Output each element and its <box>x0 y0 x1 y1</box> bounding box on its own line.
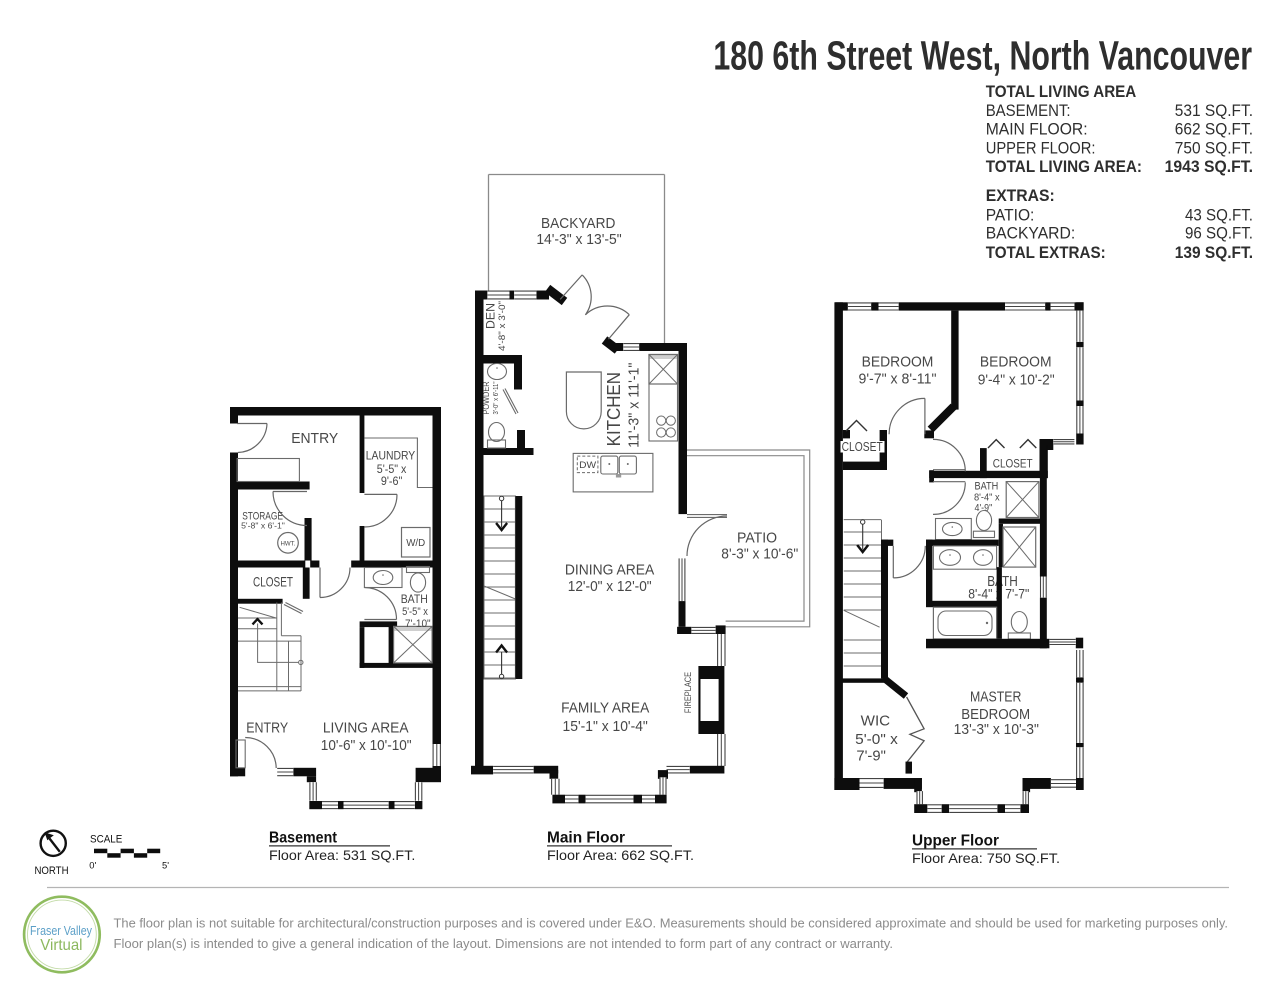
svg-text:ENTRY: ENTRY <box>246 720 288 737</box>
svg-text:TOTAL LIVING AREA:: TOTAL LIVING AREA: <box>986 157 1142 176</box>
svg-text:Upper Floor: Upper Floor <box>912 832 999 849</box>
svg-text:MAIN FLOOR:: MAIN FLOOR: <box>986 119 1088 138</box>
svg-text:CLOSET: CLOSET <box>993 457 1033 471</box>
svg-text:DEN: DEN <box>486 303 498 329</box>
svg-text:15'-1" x 10'-4": 15'-1" x 10'-4" <box>563 718 648 735</box>
svg-text:The floor plan is not suitable: The floor plan is not suitable for archi… <box>114 916 1229 931</box>
svg-text:9'-6": 9'-6" <box>381 474 402 488</box>
svg-text:180 6th Street West, North Van: 180 6th Street West, North Vancouver <box>713 33 1252 79</box>
svg-text:DW: DW <box>579 460 597 470</box>
svg-text:ENTRY: ENTRY <box>291 430 338 447</box>
svg-text:BACKYARD:: BACKYARD: <box>986 224 1075 243</box>
svg-text:5': 5' <box>162 861 169 871</box>
svg-text:BATH: BATH <box>401 592 428 606</box>
svg-text:LAUNDRY: LAUNDRY <box>366 448 416 462</box>
svg-text:MASTER: MASTER <box>970 688 1022 705</box>
svg-text:10'-6" x 10'-10": 10'-6" x 10'-10" <box>321 737 412 754</box>
svg-text:BEDROOM: BEDROOM <box>862 354 934 371</box>
svg-text:BACKYARD: BACKYARD <box>541 215 615 232</box>
svg-text:7'-9": 7'-9" <box>856 748 886 765</box>
svg-text:8'-3" x 10'-6": 8'-3" x 10'-6" <box>721 545 798 562</box>
svg-text:Floor Area: 531 SQ.FT.: Floor Area: 531 SQ.FT. <box>269 847 415 863</box>
svg-text:FIREPLACE: FIREPLACE <box>683 672 693 713</box>
svg-text:HWT.: HWT. <box>281 541 296 548</box>
svg-text:531 SQ.FT.: 531 SQ.FT. <box>1175 101 1253 120</box>
svg-text:SCALE: SCALE <box>90 833 122 845</box>
svg-text:KITCHEN: KITCHEN <box>604 372 624 446</box>
svg-text:139 SQ.FT.: 139 SQ.FT. <box>1175 243 1253 262</box>
svg-text:LIVING AREA: LIVING AREA <box>323 720 409 737</box>
svg-text:750 SQ.FT.: 750 SQ.FT. <box>1175 139 1253 158</box>
svg-text:13'-3" x 10'-3": 13'-3" x 10'-3" <box>954 721 1039 738</box>
svg-text:FAMILY AREA: FAMILY AREA <box>561 699 649 716</box>
svg-text:7'-10": 7'-10" <box>405 618 431 630</box>
svg-text:PATIO:: PATIO: <box>986 206 1035 225</box>
svg-text:W/D: W/D <box>406 538 425 549</box>
svg-text:9'-7" x 8'-11": 9'-7" x 8'-11" <box>859 371 937 388</box>
svg-text:WIC: WIC <box>861 713 891 730</box>
svg-text:662 SQ.FT.: 662 SQ.FT. <box>1175 119 1253 138</box>
svg-text:4'-9": 4'-9" <box>975 502 993 514</box>
svg-text:Main Floor: Main Floor <box>547 829 625 846</box>
svg-text:14'-3" x 13'-5": 14'-3" x 13'-5" <box>536 231 621 248</box>
svg-text:9'-4" x 10'-2": 9'-4" x 10'-2" <box>978 372 1055 389</box>
svg-text:NORTH: NORTH <box>34 865 68 877</box>
svg-text:4'-8" x 3'-0": 4'-8" x 3'-0" <box>497 301 507 351</box>
svg-text:UPPER FLOOR:: UPPER FLOOR: <box>986 139 1096 158</box>
svg-text:DINING AREA: DINING AREA <box>565 561 654 578</box>
svg-text:Virtual: Virtual <box>40 937 82 954</box>
svg-text:96 SQ.FT.: 96 SQ.FT. <box>1185 224 1253 243</box>
svg-text:43 SQ.FT.: 43 SQ.FT. <box>1185 206 1253 225</box>
svg-text:BASEMENT:: BASEMENT: <box>986 101 1071 120</box>
svg-text:TOTAL LIVING AREA: TOTAL LIVING AREA <box>986 82 1137 101</box>
svg-text:11'-3" x 11'-1": 11'-3" x 11'-1" <box>625 363 642 448</box>
svg-text:POWDER: POWDER <box>482 381 491 414</box>
svg-text:1943 SQ.FT.: 1943 SQ.FT. <box>1165 157 1253 176</box>
svg-text:Floor Area: 662 SQ.FT.: Floor Area: 662 SQ.FT. <box>547 847 694 863</box>
svg-text:Floor Area: 750 SQ.FT.: Floor Area: 750 SQ.FT. <box>912 850 1060 866</box>
svg-text:3'-0" x 6'-11": 3'-0" x 6'-11" <box>493 381 500 414</box>
svg-text:EXTRAS:: EXTRAS: <box>986 186 1055 205</box>
svg-text:PATIO: PATIO <box>737 530 777 547</box>
svg-text:TOTAL EXTRAS:: TOTAL EXTRAS: <box>986 243 1106 262</box>
svg-text:12'-0" x 12'-0": 12'-0" x 12'-0" <box>568 578 652 595</box>
svg-text:BEDROOM: BEDROOM <box>980 354 1052 371</box>
svg-text:Fraser Valley: Fraser Valley <box>30 923 92 938</box>
svg-text:Floor plan(s) is intended to g: Floor plan(s) is intended to give a gene… <box>114 936 893 951</box>
svg-text:CLOSET: CLOSET <box>253 574 293 590</box>
svg-text:0': 0' <box>89 861 96 871</box>
svg-text:5'-0" x: 5'-0" x <box>855 731 898 748</box>
svg-text:5'-8" x 6'-1": 5'-8" x 6'-1" <box>241 521 285 531</box>
svg-text:Basement: Basement <box>269 829 338 846</box>
svg-text:5'-5" x: 5'-5" x <box>402 606 428 618</box>
svg-text:CLOSET: CLOSET <box>842 439 883 454</box>
